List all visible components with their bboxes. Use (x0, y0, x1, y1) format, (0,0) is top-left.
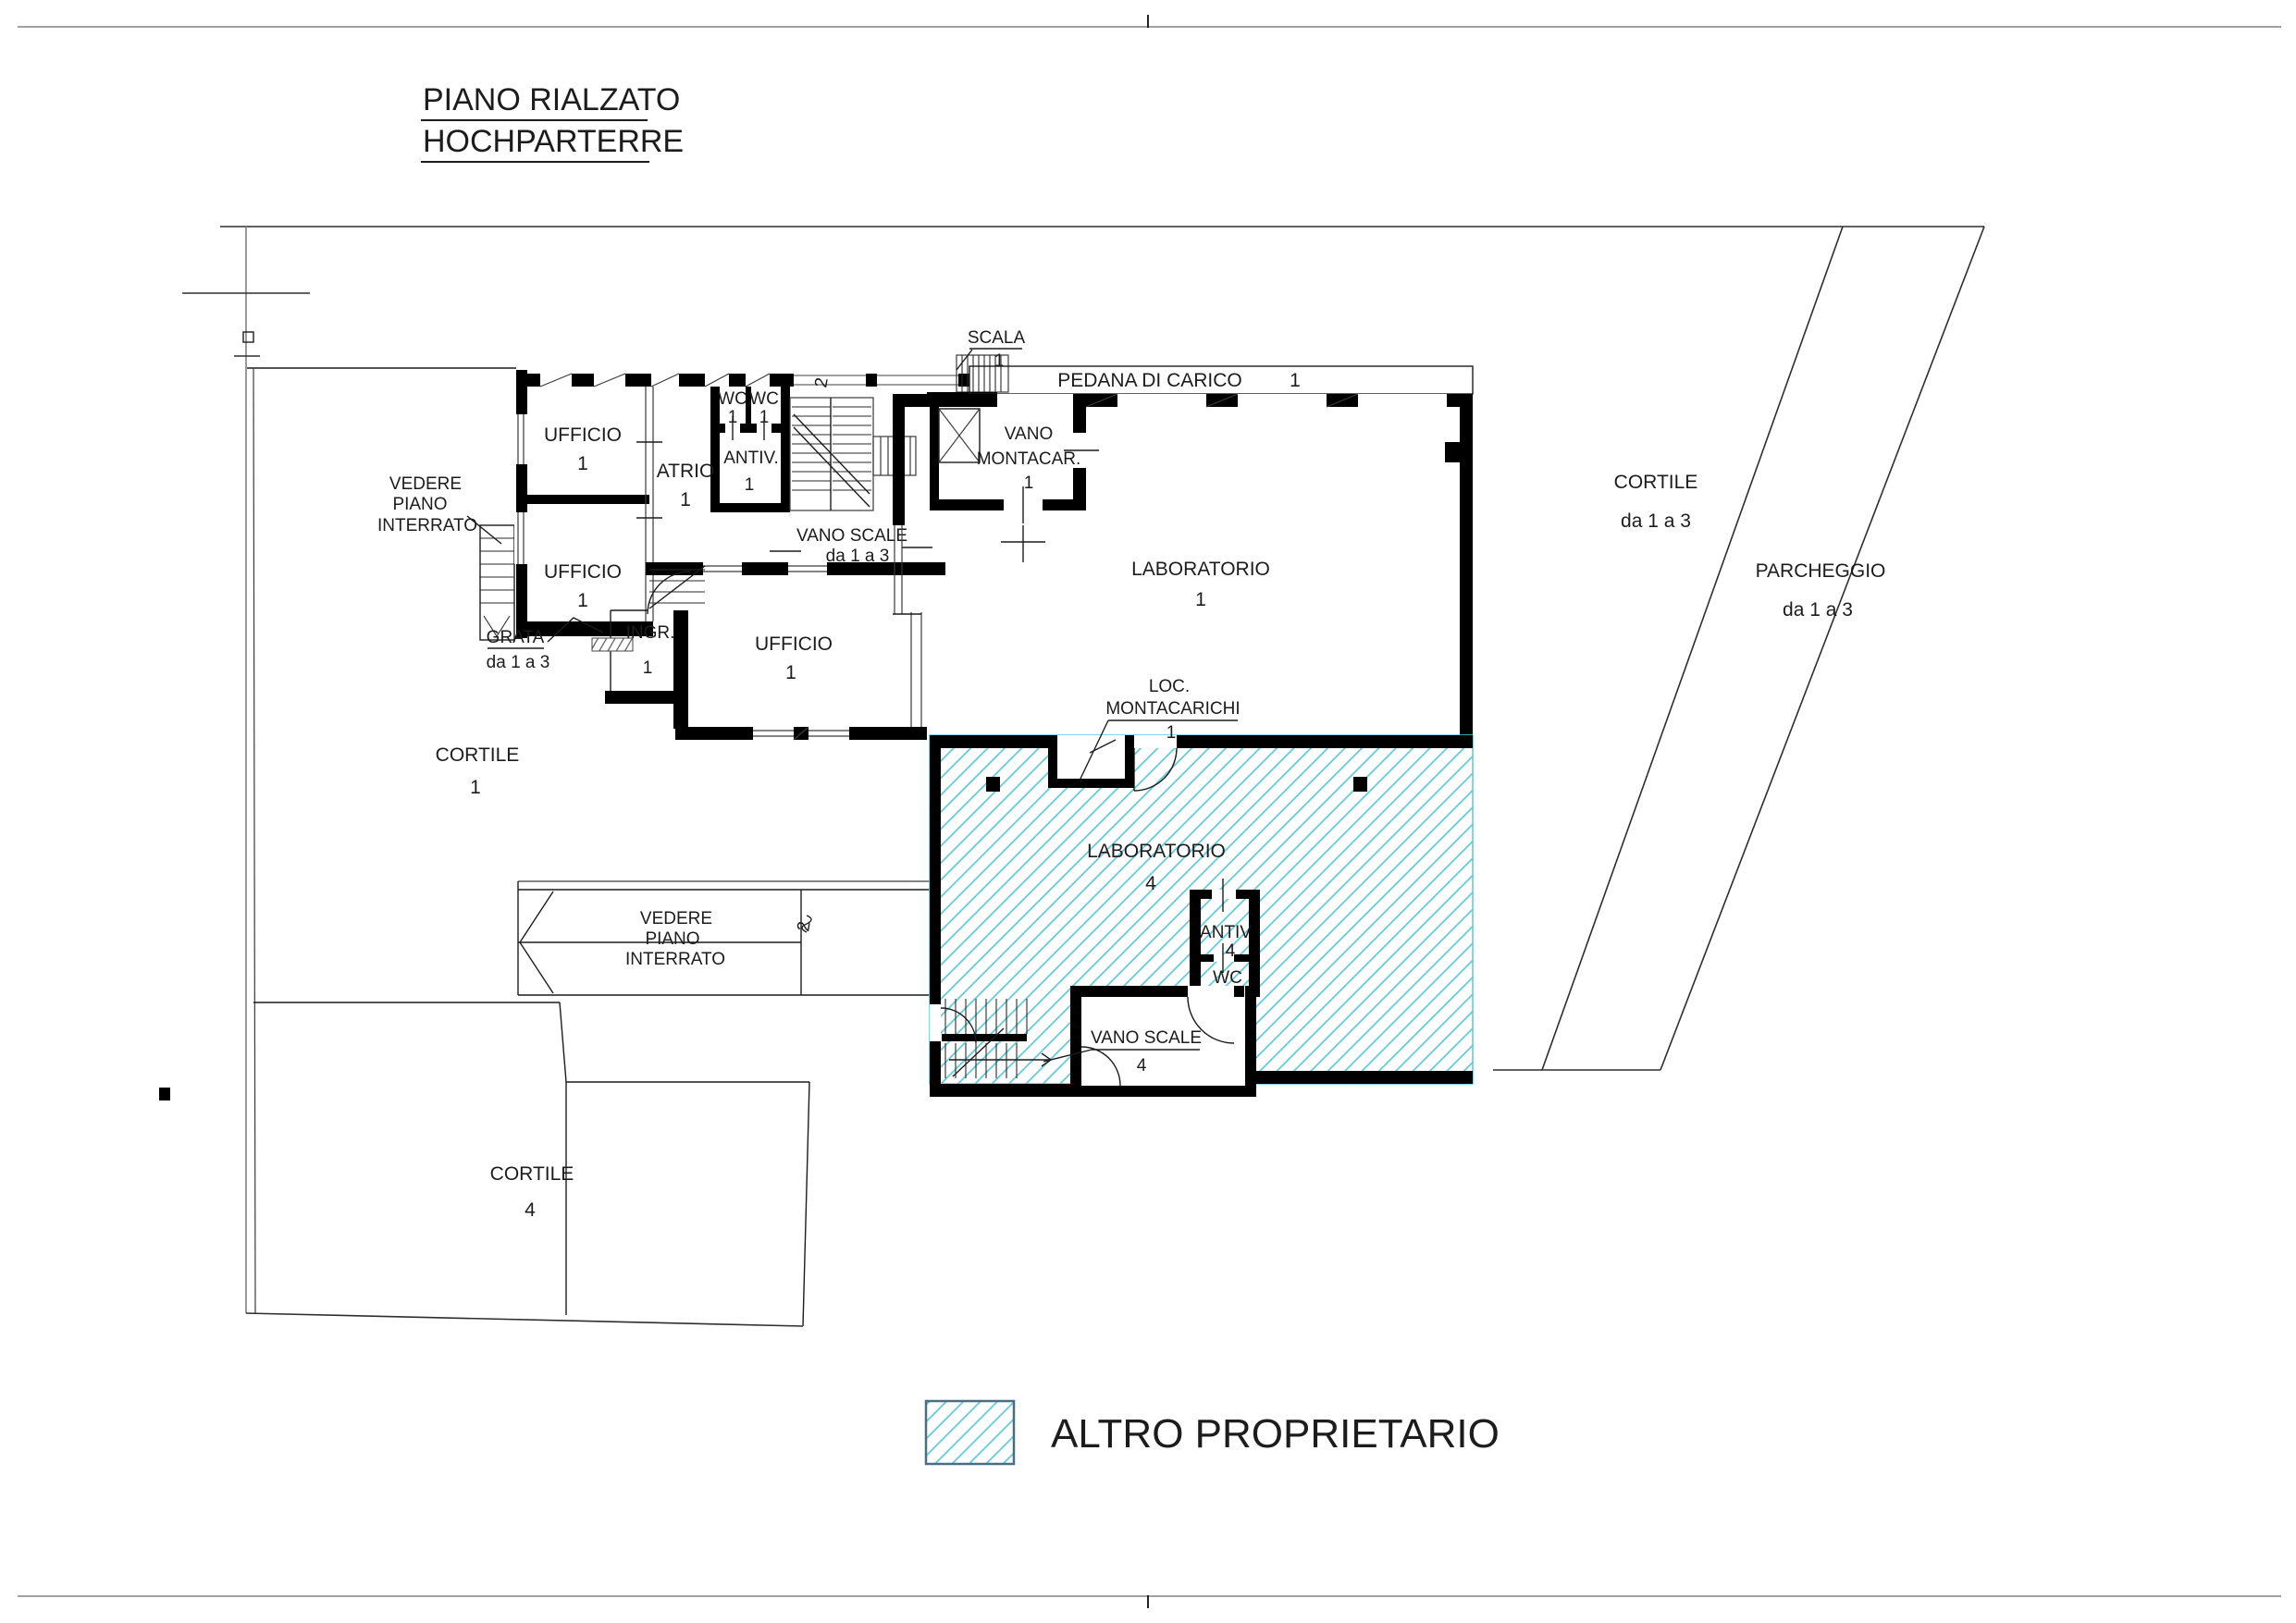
atrio-label: ATRIO (657, 461, 715, 482)
vedere-center-1: VEDERE (640, 909, 712, 928)
ingr-label: INGR. (626, 623, 675, 643)
vano-mont-label-1: VANO (1005, 424, 1053, 444)
lab4-label: LABORATORIO (1087, 841, 1226, 862)
vano-mont-label-2: MONTACAR. (977, 449, 1081, 469)
antiv-label: ANTIV. (723, 449, 779, 468)
vano-scale4-label: VANO SCALE (1091, 1028, 1202, 1048)
title-line-1: PIANO RIALZATO (423, 82, 680, 117)
drawing-title: PIANO RIALZATO HOCHPARTERRE (421, 82, 684, 162)
wc-a-number: 1 (728, 408, 738, 427)
lab1-number: 1 (1195, 589, 1206, 610)
vedere-center-2: PIANO (645, 929, 699, 949)
ufficio-a-number: 1 (577, 453, 588, 474)
vano-montacarichi: VANO MONTACAR. 1 (930, 394, 1099, 562)
pedana-label: PEDANA DI CARICO (1057, 370, 1242, 391)
wall-mark: 2 (811, 376, 833, 389)
vedere-left-3: INTERRATO (377, 516, 477, 535)
lab1-label: LABORATORIO (1131, 559, 1270, 580)
vedere-left-2: PIANO (392, 495, 447, 514)
cortile-4-outline: CORTILE 4 (246, 1002, 809, 1326)
ufficio-c-label: UFFICIO (755, 633, 833, 655)
vano-scale4-number: 4 (1137, 1056, 1147, 1076)
ingr-number: 1 (643, 658, 653, 678)
loc-number: 1 (1167, 723, 1177, 743)
wc-b-number: 1 (759, 408, 770, 427)
ufficio-c-number: 1 (785, 662, 796, 683)
antiv-number: 1 (745, 475, 755, 495)
ramp-mark: 2 (794, 920, 815, 933)
vano-scale-13-number: da 1 a 3 (826, 547, 890, 566)
loc-label-1: LOC. (1149, 677, 1190, 696)
scala-number: 1 (994, 351, 1005, 371)
wc4-label: WC (1213, 968, 1242, 988)
legend: ALTRO PROPRIETARIO (926, 1401, 1500, 1464)
cortile4-number: 4 (525, 1199, 536, 1221)
legend-label: ALTRO PROPRIETARIO (1051, 1411, 1500, 1457)
legend-hatch-swatch (926, 1401, 1014, 1464)
cortile13-number: da 1 a 3 (1621, 510, 1691, 532)
left-outdoor-stair: VEDERE PIANO INTERRATO (377, 474, 514, 640)
vano-scale-13-label: VANO SCALE (796, 526, 907, 546)
atrio-number: 1 (680, 489, 691, 510)
floor-plan-page: CORTILE 4 VEDERE PIANO INTERRATO 2 VEDER… (0, 0, 2296, 1623)
cortile1-number: 1 (470, 777, 481, 798)
wc-a-label: WC (718, 389, 747, 409)
vano-mont-number: 1 (1024, 473, 1034, 493)
grata-label: GRATA (487, 628, 545, 647)
cortile13-label: CORTILE (1614, 472, 1698, 493)
ufficio-b-number: 1 (577, 590, 588, 611)
pedana-number: 1 (1290, 370, 1301, 391)
cortile1-label: CORTILE (436, 744, 520, 766)
loc-label-2: MONTACARICHI (1105, 699, 1240, 719)
title-line-2: HOCHPARTERRE (423, 124, 684, 159)
scala-and-pedana: SCALA 1 2 PEDANA DI CARICO 1 (811, 328, 1473, 401)
ufficio-b-label: UFFICIO (544, 561, 622, 583)
scala-label: SCALA (968, 328, 1026, 348)
vedere-left-1: VEDERE (389, 474, 462, 494)
boundary-nib (159, 1088, 170, 1100)
ufficio-a-label: UFFICIO (544, 424, 622, 446)
entrance-and-center-office: GRATA da 1 a 3 INGR. 1 UFFICIO 1 (487, 566, 927, 740)
laboratorio-4-hatched: LOC. MONTACARICHI 1 LABORATORIO 4 ANTIV … (930, 677, 1473, 1097)
antiv4-label: ANTIV (1200, 923, 1252, 942)
parcheggio-number: da 1 a 3 (1783, 599, 1853, 621)
floor-plan-drawing: CORTILE 4 VEDERE PIANO INTERRATO 2 VEDER… (0, 0, 2296, 1623)
grata-number: da 1 a 3 (487, 653, 550, 672)
vano-scale-4-room: VANO SCALE 4 (1043, 986, 1256, 1097)
wc-b-label: WC (749, 389, 779, 409)
ramp-strip: VEDERE PIANO INTERRATO 2 (518, 881, 930, 995)
lab4-number: 4 (1145, 873, 1156, 894)
vedere-center-3: INTERRATO (625, 950, 725, 969)
antiv4-number: 4 (1226, 941, 1236, 961)
parcheggio-label: PARCHEGGIO (1756, 560, 1886, 582)
cortile4-label: CORTILE (490, 1163, 574, 1185)
